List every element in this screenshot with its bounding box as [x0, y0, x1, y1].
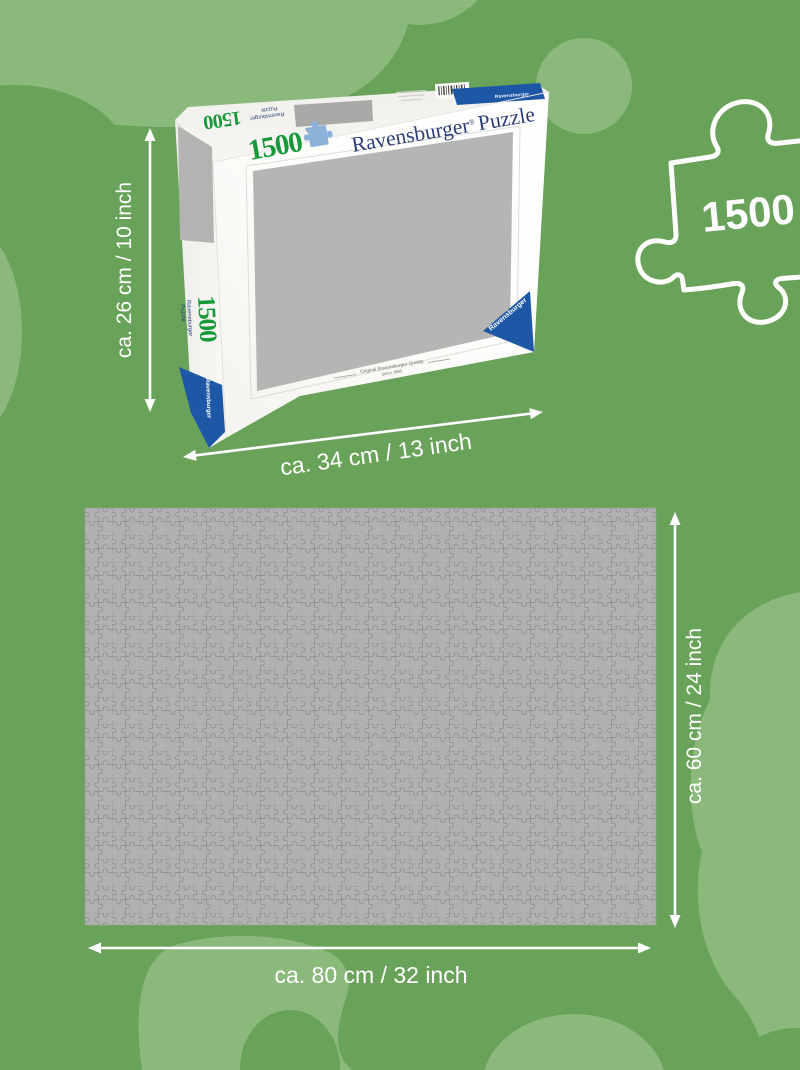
infographic-canvas: Ravensburger 1500 Ravensburger Puzzle Ra…: [0, 0, 800, 1070]
puzzle-width-label: ca. 80 cm / 32 inch: [274, 962, 467, 988]
box-height-label: ca. 26 cm / 10 inch: [113, 182, 136, 358]
puzzle-height-label: ca. 60 cm / 24 inch: [683, 628, 706, 804]
puzzle-sheet-texture: [85, 508, 656, 925]
puzzle-sheet: [85, 508, 656, 925]
product-size-infographic: Ravensburger 1500 Ravensburger Puzzle Ra…: [0, 0, 800, 1070]
box-spine-count: 1500: [192, 295, 221, 343]
piece-count-label: 1500: [699, 185, 797, 241]
